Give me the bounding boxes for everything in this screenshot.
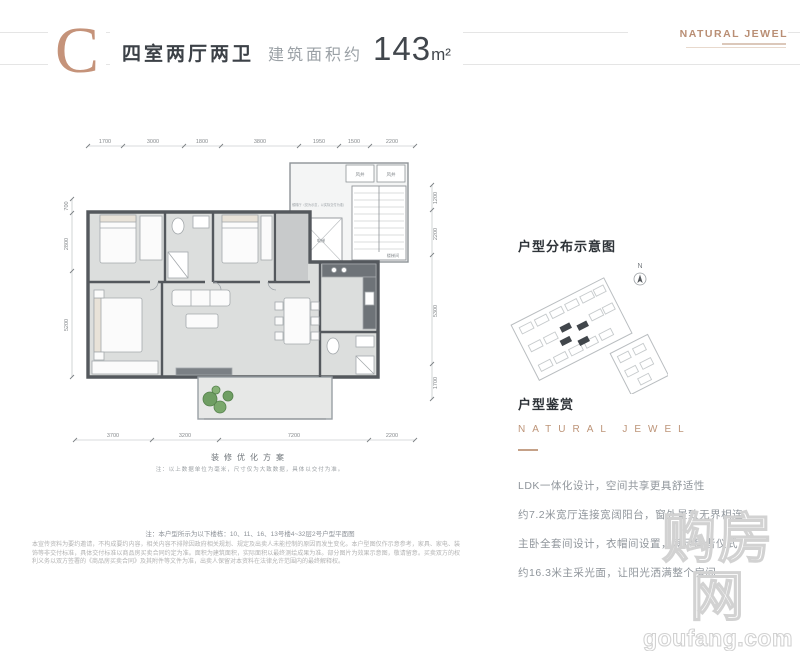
- bedroom-2-wardrobe: [261, 216, 272, 260]
- unit-type-letter: C: [48, 16, 106, 86]
- air-shaft-1-label: 风井: [356, 171, 365, 178]
- watermark: 购房网 goufang.com: [636, 510, 800, 650]
- appreciation-brand: NATURAL JEWEL: [518, 424, 691, 435]
- compass-icon: N: [634, 263, 646, 285]
- site-plan-diagram: N: [510, 252, 668, 394]
- area-label: 建筑面积约: [268, 41, 363, 65]
- master-bed: [94, 290, 142, 360]
- stairs: 楼梯间: [352, 186, 406, 260]
- area-unit: m²: [431, 45, 451, 65]
- dim-top-4: 3800: [254, 139, 266, 145]
- site-block-large: [511, 278, 632, 380]
- dim-bottom-3: 7200: [288, 433, 300, 439]
- page-title: 四室两厅两卫 建筑面积约 143 m²: [110, 30, 463, 70]
- dim-bottom-2: 3200: [179, 433, 191, 439]
- area-value: 143: [373, 30, 431, 68]
- dining-set: [275, 298, 319, 344]
- watermark-cn: 购房网: [636, 510, 800, 626]
- dim-top-5: 1950: [313, 139, 325, 145]
- appreciation-dash: [518, 449, 538, 451]
- watermark-en: goufang.com: [636, 626, 800, 650]
- brand-underline: [686, 47, 786, 48]
- brand-logo: NATURAL JEWEL: [628, 28, 788, 50]
- compass-label: N: [637, 263, 642, 270]
- coffee-table: [186, 314, 218, 328]
- dim-right-4: 1700: [433, 377, 439, 389]
- entry-floor: [277, 214, 308, 280]
- bedroom-1-bed: [100, 215, 136, 263]
- dim-bottom-1: 3700: [107, 433, 119, 439]
- dim-left-1: 700: [64, 201, 70, 210]
- dim-top-1: 1700: [99, 139, 111, 145]
- tv-cabinet: [176, 368, 232, 375]
- dim-right-2: 2200: [433, 228, 439, 240]
- master-wardrobe: [92, 361, 158, 374]
- bedroom-1-wardrobe: [140, 216, 162, 260]
- dim-top-2: 3000: [147, 139, 159, 145]
- dim-left-3: 5200: [64, 319, 70, 331]
- brand-tagline-bar: [722, 43, 786, 45]
- floor-plan: 1700 3000 1800 3800 1950 1500 2200 3700 …: [50, 128, 450, 450]
- appreciation-title: 户型鉴赏: [518, 394, 574, 413]
- description-line: LDK一体化设计，空间共享更具舒适性: [518, 472, 800, 501]
- elevator-label: 电梯: [317, 237, 325, 244]
- dim-top-7: 2200: [386, 139, 398, 145]
- unit-layout-title: 四室两厅两卫: [122, 39, 254, 66]
- brand-name: NATURAL JEWEL: [628, 28, 788, 40]
- dim-top-3: 1800: [196, 139, 208, 145]
- air-shaft-2-label: 风井: [387, 171, 396, 178]
- stairs-label: 楼梯间: [387, 252, 400, 259]
- dim-right-1: 1200: [433, 192, 439, 204]
- site-block-small: [610, 334, 668, 394]
- dim-right-3: 5300: [433, 305, 439, 317]
- living-sofa: [172, 290, 230, 306]
- footer-note: 注：本户型所示为以下楼栋：10、11、16、13号楼4~32层2号户型平面图: [30, 528, 470, 538]
- plan-caption-note: 注：以上数据单位为毫米，尺寸仅为大致数据，具体以交付为准。: [50, 465, 450, 473]
- dim-top-6: 1500: [348, 139, 360, 145]
- footer-disclaimer: 本宣传资料为要约邀请，不构成要约内容，相关内容不排除因政府相关规划、规定及出卖人…: [32, 541, 460, 567]
- lobby-label: 候梯厅（仅为示意，以实际交付为准）: [292, 202, 346, 207]
- plan-caption: 装修优化方案: [50, 452, 450, 463]
- dim-bottom-4: 2200: [386, 433, 398, 439]
- dim-left-2: 2800: [64, 238, 70, 250]
- bedroom-2-bed: [222, 215, 258, 263]
